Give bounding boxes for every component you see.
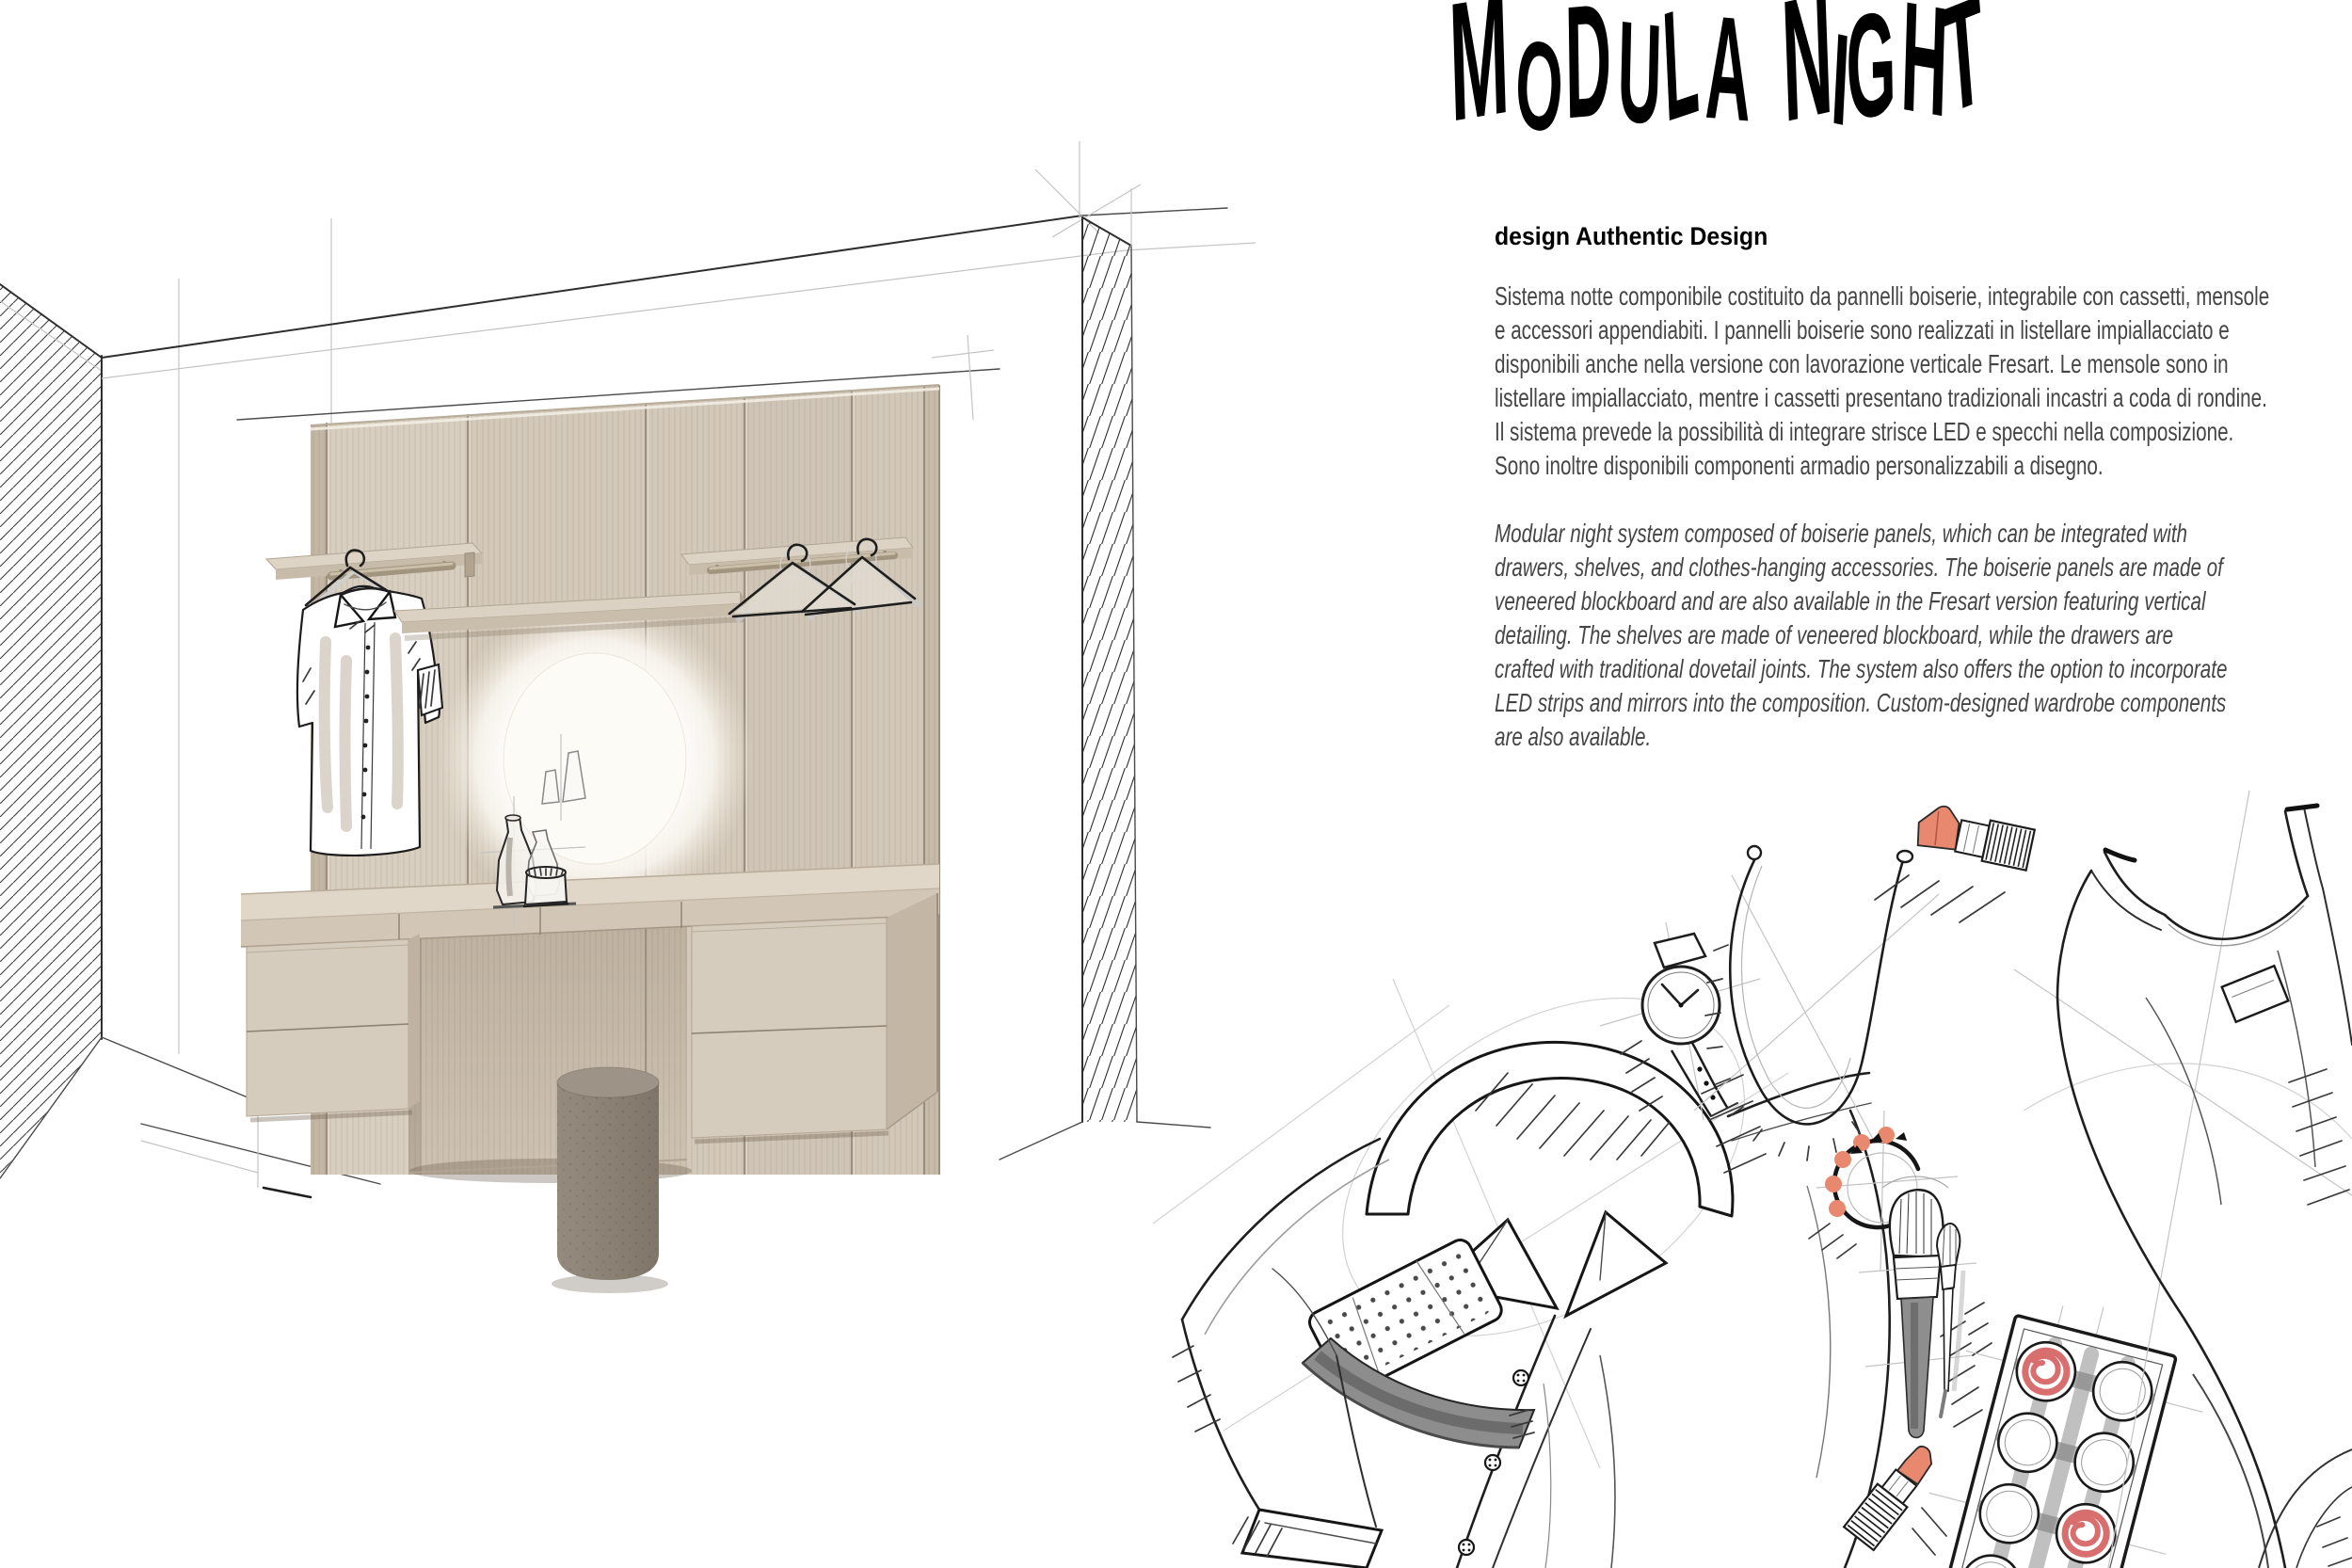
right-drawer-unit [692,893,937,1142]
pouf-stool [552,1067,668,1293]
en-line: are also available. [1495,722,2186,756]
en-line: detailing. The shelves are made of venee… [1495,620,2186,654]
vanity-wall-unit [237,335,1000,1293]
makeup-brush-large [1859,1176,1982,1438]
lipstick-sketch-bottom [1844,1438,1946,1555]
en-line: crafted with traditional dovetail joints… [1495,654,2186,688]
it-line: Il sistema prevede la possibilità di int… [1495,417,2186,451]
makeup-palette-sketch [1891,1276,2222,1568]
fashion-sketches [1153,791,2352,1568]
left-drawer-unit [247,934,420,1120]
it-line: listellare impiallacciato, mentre i cass… [1495,383,2186,417]
ceiling-line [102,216,1082,358]
lipstick-sketch-top [1875,802,2036,922]
floor-line [102,1037,252,1099]
necklace-sketch [1694,846,1939,1160]
it-line: disponibili anche nella versione con lav… [1495,349,2186,383]
it-line: Sistema notte componibile costituito da … [1495,281,2186,315]
round-mirror [437,600,753,917]
en-line: veneered blockboard and are also availab… [1495,586,2186,620]
makeup-brush-small [1937,1224,1992,1416]
page-title: MODULANIGHT [1451,47,2167,235]
right-pillar-hatch [1082,217,1137,1122]
it-line: e accessori appendiabiti. I pannelli boi… [1495,315,2186,349]
en-line: Modular night system composed of boiseri… [1495,519,2186,552]
it-line: Sono inoltre disponibili componenti arma… [1495,451,2186,485]
description-english: Modular night system composed of boiseri… [1495,519,2352,756]
en-line: drawers, shelves, and clothes-hanging ac… [1495,552,2186,586]
shirt-buttons [1459,1370,1528,1555]
en-line: LED strips and mirrors into the composit… [1495,688,2186,722]
catalog-page: { "page": {"background": "#ffffff"}, "he… [0,0,2352,1568]
left-wall-hatch [0,284,102,1176]
designer-credit: design Authentic Design [1495,222,1768,251]
shirt-sketch [1153,928,1890,1568]
description-italian: Sistema notte componibile costituito da … [1495,281,2352,485]
